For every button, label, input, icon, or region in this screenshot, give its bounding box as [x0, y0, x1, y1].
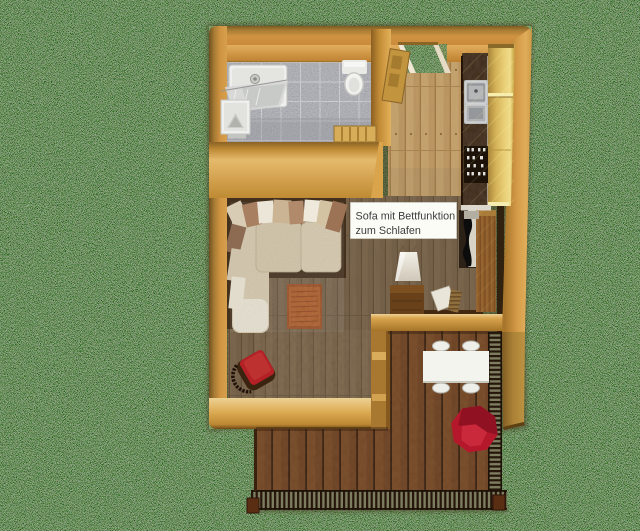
- svg-text:Sofa mit Bettfunktion: Sofa mit Bettfunktion: [356, 211, 456, 223]
- svg-text:zum Schlafen: zum Schlafen: [356, 225, 421, 237]
